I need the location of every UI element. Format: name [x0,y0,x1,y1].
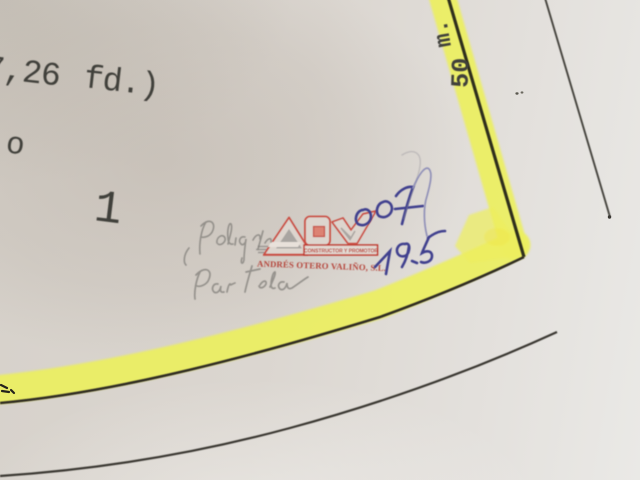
svg-text:fd.): fd.) [82,60,161,105]
svg-text:CONSTRUCTOR Y PROMOTOR: CONSTRUCTOR Y PROMOTOR [304,249,378,255]
svg-text:1: 1 [91,182,125,237]
svg-text:o: o [4,127,27,164]
svg-text:7,26: 7,26 [0,50,62,95]
svg-text:m.: m. [427,18,457,50]
svg-text:50: 50 [447,57,477,88]
svg-text:ANDRÉS OTERO VALIÑO, S.L.: ANDRÉS OTERO VALIÑO, S.L. [257,259,387,274]
